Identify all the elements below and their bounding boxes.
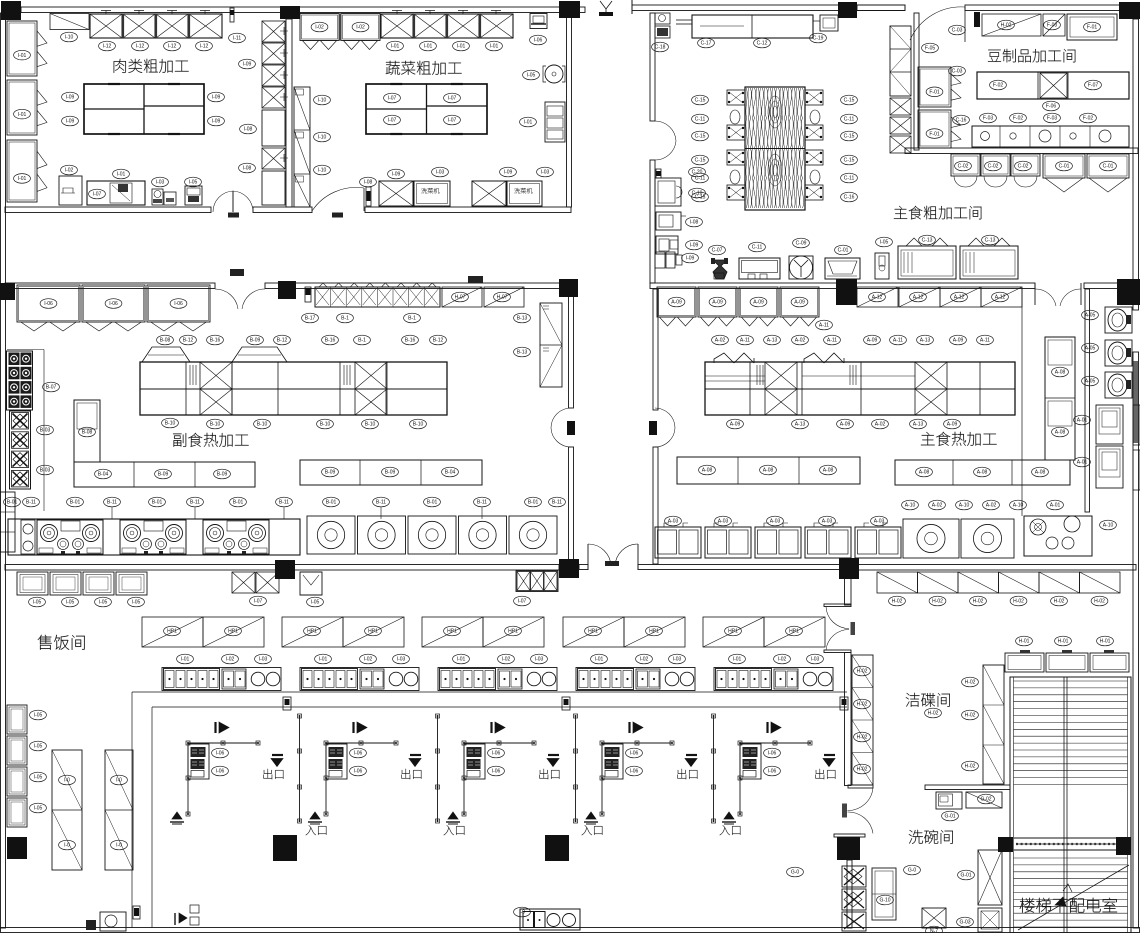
svg-text:A-08: A-08 (1055, 430, 1066, 436)
svg-text:C-13: C-13 (985, 238, 996, 244)
svg-text:B-01: B-01 (528, 500, 539, 506)
svg-text:C-15: C-15 (844, 158, 855, 164)
svg-text:A-12: A-12 (954, 295, 965, 301)
svg-text:I-05: I-05 (34, 713, 43, 719)
svg-text:HP1: HP1 (588, 629, 598, 635)
svg-text:B-13: B-13 (517, 316, 528, 322)
svg-text:B-16: B-16 (405, 338, 416, 344)
svg-text:I-05: I-05 (33, 600, 42, 606)
svg-text:F-03: F-03 (1047, 116, 1058, 122)
svg-text:A-05: A-05 (1085, 313, 1096, 319)
svg-text:A-02: A-02 (932, 503, 943, 509)
svg-text:I-01: I-01 (181, 657, 190, 663)
svg-text:A-12: A-12 (872, 295, 883, 301)
svg-text:H-02: H-02 (928, 711, 939, 717)
svg-text:A-09: A-09 (867, 338, 878, 344)
svg-text:I-08: I-08 (244, 127, 253, 133)
svg-text:A-09: A-09 (840, 422, 851, 428)
svg-text:A-01: A-01 (1050, 503, 1061, 509)
svg-text:I-10: I-10 (318, 135, 327, 141)
svg-text:I-05: I-05 (34, 775, 43, 781)
svg-text:I-09: I-09 (66, 119, 75, 125)
svg-text:B-1: B-1 (408, 316, 416, 322)
svg-text:B-11: B-11 (26, 500, 36, 506)
svg-text:A-05: A-05 (1085, 346, 1096, 352)
svg-text:I-02: I-02 (778, 657, 787, 663)
svg-text:B-10: B-10 (165, 421, 176, 427)
svg-text:H-02: H-02 (857, 669, 868, 675)
svg-text:I-03: I-03 (541, 170, 550, 176)
svg-text:A-11: A-11 (819, 323, 829, 329)
svg-text:B-1: B-1 (358, 338, 366, 344)
svg-text:A-03: A-03 (668, 519, 679, 525)
svg-text:I-0: I-0 (64, 778, 70, 784)
svg-text:C-11: C-11 (844, 176, 855, 182)
svg-text:I-06: I-06 (534, 38, 543, 44)
svg-text:A-09: A-09 (794, 300, 805, 306)
svg-text:H-02: H-02 (857, 735, 868, 741)
svg-text:B-01: B-01 (326, 500, 337, 506)
svg-text:H-02: H-02 (1094, 599, 1105, 605)
svg-text:B-07: B-07 (46, 385, 57, 391)
svg-text:A-09: A-09 (712, 300, 723, 306)
svg-text:A-08: A-08 (823, 468, 834, 474)
svg-text:B-16: B-16 (325, 338, 336, 344)
svg-text:I-0: I-0 (519, 910, 525, 916)
svg-text:H-02: H-02 (965, 764, 976, 770)
svg-text:C-01: C-01 (838, 248, 849, 254)
svg-text:A-09: A-09 (671, 300, 682, 306)
svg-text:B-09: B-09 (158, 472, 169, 478)
svg-text:I-11: I-11 (233, 36, 241, 42)
svg-text:A-03: A-03 (770, 519, 781, 525)
svg-text:I-0: I-0 (64, 843, 70, 849)
svg-text:A-08: A-08 (702, 468, 713, 474)
svg-text:I-02: I-02 (364, 657, 373, 663)
svg-text:B-11: B-11 (190, 500, 200, 506)
svg-text:A-13: A-13 (920, 338, 931, 344)
svg-text:C-17: C-17 (701, 41, 712, 47)
svg-text:B-10: B-10 (365, 422, 376, 428)
svg-text:A-13: A-13 (767, 338, 778, 344)
svg-text:B-03: B-03 (40, 428, 51, 434)
svg-text:H-01: H-01 (1019, 639, 1030, 645)
svg-text:I-05: I-05 (527, 73, 536, 79)
svg-text:A-08: A-08 (919, 470, 930, 476)
svg-text:F-01: F-01 (929, 131, 940, 137)
svg-text:HP1: HP1 (228, 629, 238, 635)
svg-text:I-06: I-06 (630, 751, 639, 757)
svg-text:I-01: I-01 (18, 112, 27, 118)
svg-text:G-0: G-0 (791, 870, 800, 876)
svg-text:A-09: A-09 (953, 338, 964, 344)
svg-text:B-04: B-04 (98, 472, 109, 478)
svg-text:A-01: A-01 (1077, 418, 1088, 424)
svg-text:C-19: C-19 (813, 36, 824, 42)
svg-text:B-01: B-01 (152, 500, 163, 506)
svg-text:A-03: A-03 (718, 519, 729, 525)
svg-text:H-02: H-02 (857, 702, 868, 708)
svg-text:HP1: HP1 (789, 629, 799, 635)
svg-text:HP1: HP1 (307, 629, 317, 635)
svg-text:F-06: F-06 (1046, 104, 1057, 110)
svg-text:A-03: A-03 (874, 519, 885, 525)
svg-text:B-13: B-13 (517, 350, 528, 356)
svg-text:G-01: G-01 (960, 873, 971, 879)
svg-text:C-15: C-15 (695, 134, 706, 140)
svg-text:I-01: I-01 (595, 657, 604, 663)
svg-text:I-09: I-09 (504, 170, 513, 176)
svg-text:I-05: I-05 (880, 240, 889, 246)
svg-text:I-03: I-03 (535, 657, 544, 663)
svg-text:G-01: G-01 (944, 814, 955, 820)
svg-text:I-03: I-03 (397, 657, 406, 663)
svg-text:I-02: I-02 (226, 657, 235, 663)
svg-text:I-06: I-06 (354, 769, 363, 775)
svg-text:A-13: A-13 (913, 422, 924, 428)
svg-text:A-08: A-08 (763, 468, 774, 474)
svg-text:I-01: I-01 (319, 657, 328, 663)
svg-text:G-10: G-10 (879, 898, 890, 904)
svg-text:A-12: A-12 (913, 295, 924, 301)
svg-text:I-06: I-06 (630, 769, 639, 775)
svg-text:I-06: I-06 (216, 751, 225, 757)
svg-text:A-09: A-09 (730, 422, 741, 428)
svg-text:I-10: I-10 (65, 35, 74, 41)
svg-text:HP1: HP1 (167, 629, 177, 635)
svg-text:HP1: HP1 (508, 629, 518, 635)
svg-text:I-01: I-01 (524, 120, 533, 126)
svg-text:A-08: A-08 (1055, 370, 1066, 376)
svg-text:B-16: B-16 (210, 338, 221, 344)
svg-text:I-06: I-06 (768, 769, 777, 775)
svg-text:A-01: A-01 (1077, 460, 1088, 466)
svg-text:C-13: C-13 (922, 238, 933, 244)
svg-text:I-08: I-08 (243, 166, 252, 172)
svg-text:B-01: B-01 (427, 500, 438, 506)
svg-text:A-10: A-10 (1013, 503, 1024, 509)
svg-text:A-08: A-08 (977, 470, 988, 476)
svg-text:I-01: I-01 (391, 44, 400, 50)
svg-text:A-08: A-08 (1035, 470, 1046, 476)
svg-text:F-03: F-03 (1047, 23, 1058, 29)
svg-text:B-09: B-09 (250, 338, 261, 344)
svg-text:I-06: I-06 (354, 751, 363, 757)
svg-text:I-06: I-06 (768, 751, 777, 757)
svg-text:C-03: C-03 (952, 28, 963, 34)
svg-text:I-12: I-12 (103, 44, 112, 50)
svg-text:I-06: I-06 (492, 751, 501, 757)
svg-text:A-02: A-02 (986, 503, 997, 509)
svg-text:B-09: B-09 (325, 470, 336, 476)
svg-text:I-02: I-02 (502, 657, 511, 663)
svg-text:I-01: I-01 (18, 53, 27, 59)
svg-text:I-07: I-07 (254, 599, 263, 605)
svg-text:I-06: I-06 (109, 301, 118, 307)
svg-text:B-11: B-11 (477, 500, 487, 506)
svg-text:I-01: I-01 (733, 657, 742, 663)
svg-text:F-03: F-03 (983, 116, 994, 122)
svg-text:C-07: C-07 (712, 248, 723, 254)
svg-text:I-02: I-02 (640, 657, 649, 663)
svg-text:I-06: I-06 (174, 301, 183, 307)
svg-text:C-11: C-11 (844, 117, 855, 123)
svg-text:I-03: I-03 (673, 657, 682, 663)
svg-text:I-06: I-06 (492, 769, 501, 775)
svg-text:I-05: I-05 (66, 600, 75, 606)
svg-text:B-01: B-01 (7, 500, 18, 506)
svg-text:B-12: B-12 (277, 338, 288, 344)
svg-text:F-02: F-02 (1013, 116, 1024, 122)
svg-text:I-09: I-09 (243, 62, 252, 68)
svg-text:G-03: G-03 (959, 920, 970, 926)
svg-text:B-11: B-11 (376, 500, 386, 506)
svg-text:B-10: B-10 (257, 422, 268, 428)
svg-text:H-02: H-02 (1001, 23, 1012, 29)
svg-text:B-10: B-10 (210, 422, 221, 428)
svg-text:A-10: A-10 (1103, 523, 1114, 529)
svg-text:I-09: I-09 (212, 95, 221, 101)
svg-text:A-09: A-09 (947, 422, 958, 428)
svg-text:C-15: C-15 (695, 158, 706, 164)
svg-text:C-20: C-20 (692, 170, 703, 176)
svg-text:A-11: A-11 (827, 338, 837, 344)
svg-text:A-10: A-10 (959, 503, 970, 509)
svg-text:I-07: I-07 (448, 96, 457, 102)
svg-text:I-07: I-07 (388, 96, 397, 102)
svg-text:I-02: I-02 (65, 168, 74, 174)
svg-text:B-08: B-08 (82, 430, 93, 436)
svg-text:B-01: B-01 (233, 500, 244, 506)
svg-text:I-10: I-10 (318, 168, 327, 174)
svg-text:I-09: I-09 (392, 172, 401, 178)
svg-text:I-02: I-02 (356, 25, 365, 31)
svg-text:A-05: A-05 (1085, 379, 1096, 385)
svg-text:I-12: I-12 (168, 44, 177, 50)
svg-text:H-02: H-02 (892, 599, 903, 605)
svg-text:I-0: I-0 (116, 778, 122, 784)
svg-text:H-02: H-02 (857, 767, 868, 773)
svg-text:I-01: I-01 (18, 176, 27, 182)
svg-text:A-02: A-02 (715, 338, 726, 344)
svg-text:C-02: C-02 (958, 164, 969, 170)
svg-text:F-01: F-01 (929, 90, 940, 96)
svg-text:I-03: I-03 (156, 180, 165, 186)
svg-text:H-01: H-01 (1058, 639, 1069, 645)
svg-text:C-01: C-01 (1059, 164, 1070, 170)
svg-text:A-10: A-10 (905, 503, 916, 509)
svg-text:I-12: I-12 (136, 44, 145, 50)
svg-text:B-11: B-11 (107, 500, 117, 506)
svg-text:B-04: B-04 (445, 470, 456, 476)
svg-text:I-05: I-05 (311, 600, 320, 606)
svg-text:B-09: B-09 (385, 470, 396, 476)
svg-text:B-12: B-12 (433, 338, 444, 344)
svg-text:C-01: C-01 (1103, 164, 1114, 170)
svg-text:I-09: I-09 (212, 119, 221, 125)
svg-text:C-15: C-15 (695, 98, 706, 104)
svg-text:N-7: N-7 (930, 929, 938, 933)
svg-text:B-09: B-09 (217, 472, 228, 478)
svg-text:G-02: G-02 (980, 797, 991, 803)
svg-text:I-09: I-09 (690, 243, 699, 249)
svg-text:C-09: C-09 (796, 241, 807, 247)
svg-text:C-15: C-15 (844, 134, 855, 140)
svg-text:H-07: H-07 (497, 295, 508, 301)
svg-text:I-10: I-10 (318, 98, 327, 104)
svg-text:B-10: B-10 (413, 422, 424, 428)
svg-text:A-13: A-13 (795, 422, 806, 428)
svg-text:C-02: C-02 (1018, 164, 1029, 170)
svg-text:F-05: F-05 (925, 46, 936, 52)
svg-text:I-01: I-01 (457, 657, 466, 663)
svg-text:C-12: C-12 (757, 41, 768, 47)
svg-text:B-11: B-11 (279, 500, 289, 506)
svg-text:B-01: B-01 (70, 500, 81, 506)
svg-text:I-06: I-06 (216, 769, 225, 775)
svg-text:B-1: B-1 (341, 316, 349, 322)
svg-text:HP1: HP1 (368, 629, 378, 635)
svg-text:H-07: H-07 (455, 295, 466, 301)
svg-text:H-02: H-02 (965, 713, 976, 719)
svg-text:B-08: B-08 (160, 338, 171, 344)
svg-text:I-07: I-07 (388, 118, 397, 124)
svg-text:A-11: A-11 (893, 338, 903, 344)
svg-text:H-01: H-01 (1100, 639, 1111, 645)
svg-text:I-01: I-01 (424, 44, 433, 50)
svg-text:I-09: I-09 (66, 95, 75, 101)
svg-text:H-02: H-02 (1013, 599, 1024, 605)
svg-text:C-03: C-03 (952, 69, 963, 75)
svg-text:I-01: I-01 (457, 44, 466, 50)
svg-text:I-07: I-07 (518, 599, 527, 605)
svg-text:I-08: I-08 (690, 220, 699, 226)
svg-text:I-09: I-09 (686, 256, 695, 262)
svg-text:HP1: HP1 (447, 629, 457, 635)
svg-text:HP1: HP1 (728, 629, 738, 635)
svg-text:C-10: C-10 (692, 191, 703, 197)
svg-text:C-15: C-15 (844, 98, 855, 104)
svg-text:H-02: H-02 (973, 599, 984, 605)
svg-text:A-09: A-09 (753, 300, 764, 306)
svg-text:I-05: I-05 (132, 600, 141, 606)
svg-text:I-05: I-05 (189, 180, 198, 186)
svg-text:B-10: B-10 (320, 422, 331, 428)
svg-text:B-03: B-03 (40, 468, 51, 474)
svg-text:H-02: H-02 (1054, 599, 1065, 605)
svg-text:C-16: C-16 (844, 195, 855, 201)
svg-text:B-12: B-12 (183, 338, 194, 344)
svg-text:C-02: C-02 (988, 164, 999, 170)
svg-text:I-05: I-05 (34, 806, 43, 812)
svg-text:B-11: B-11 (552, 500, 562, 506)
svg-text:F-02: F-02 (1083, 116, 1094, 122)
svg-text:I-03: I-03 (259, 657, 268, 663)
svg-text:A-02: A-02 (875, 422, 886, 428)
svg-text:I-08: I-08 (364, 180, 373, 186)
svg-text:G-0: G-0 (908, 868, 917, 874)
svg-text:I-07: I-07 (93, 192, 102, 198)
svg-text:F-07: F-07 (1088, 83, 1099, 89)
svg-text:HP1: HP1 (649, 629, 659, 635)
svg-text:F-01: F-01 (1087, 25, 1098, 31)
svg-text:C-11: C-11 (695, 117, 706, 123)
svg-text:F-02: F-02 (993, 83, 1004, 89)
svg-text:A-11: A-11 (980, 338, 990, 344)
svg-text:I-03: I-03 (811, 657, 820, 663)
svg-text:C-18: C-18 (655, 45, 666, 51)
svg-text:H-02: H-02 (965, 680, 976, 686)
svg-text:I-01: I-01 (117, 172, 126, 178)
svg-text:H-02: H-02 (932, 599, 943, 605)
svg-text:I-05: I-05 (34, 744, 43, 750)
svg-text:A-11: A-11 (740, 338, 750, 344)
svg-text:I-03: I-03 (436, 170, 445, 176)
svg-text:C-11: C-11 (752, 245, 763, 251)
svg-text:I-07: I-07 (448, 118, 457, 124)
svg-text:I-06: I-06 (44, 301, 53, 307)
svg-text:I-01: I-01 (490, 44, 499, 50)
svg-text:C-16: C-16 (956, 118, 967, 124)
svg-text:I-0: I-0 (116, 843, 122, 849)
svg-text:I-05: I-05 (99, 600, 108, 606)
svg-text:B-17: B-17 (305, 316, 316, 322)
svg-text:A-12: A-12 (995, 295, 1006, 301)
svg-text:A-03: A-03 (822, 519, 833, 525)
svg-text:I-12: I-12 (200, 44, 209, 50)
svg-text:I-02: I-02 (315, 25, 324, 31)
svg-text:A-02: A-02 (795, 338, 806, 344)
